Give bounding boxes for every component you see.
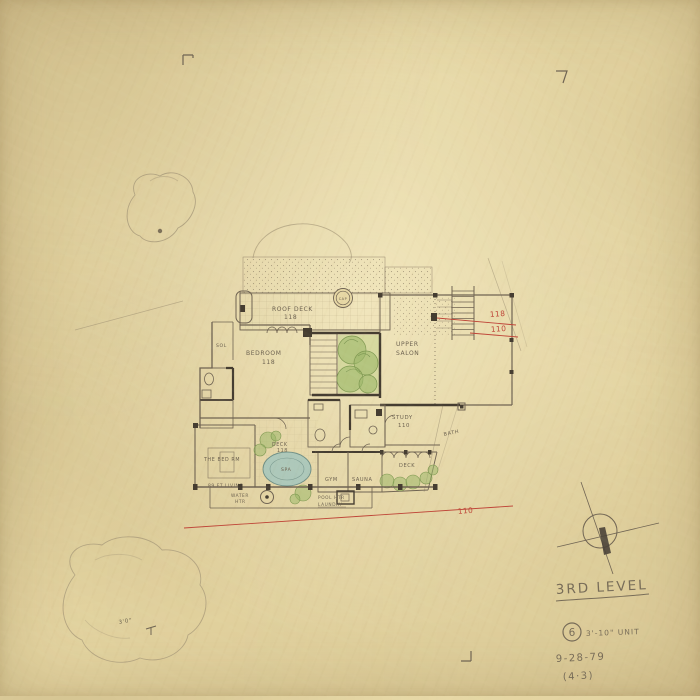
corner-mark-bottom-right: [461, 651, 471, 661]
label-upper-salon-2: SALON: [396, 350, 419, 357]
label-roof-deck: ROOF DECK: [272, 306, 313, 313]
label-upper-salon-1: UPPER: [396, 341, 419, 348]
bed-rm: [193, 423, 255, 487]
label-cap: CAP: [339, 297, 348, 301]
pencil-blob-upper-left: [127, 173, 195, 242]
corner-mark-top-left: [183, 55, 193, 65]
label-deck-center: DECK: [272, 442, 288, 448]
label-deck-right: DECK: [399, 463, 415, 469]
label-bed-rm: THE BED RM: [203, 457, 240, 463]
corner-mark-bottom-left: [146, 626, 156, 635]
roof-vent-icon: CAP: [334, 289, 353, 308]
label-deck-center-no: 118: [277, 448, 288, 454]
north-arrow-icon: [557, 482, 659, 574]
corner-mark-top-right: [556, 71, 567, 83]
gym-sauna: [312, 444, 382, 492]
label-roof-deck-no: 118: [284, 314, 297, 321]
redline-110-upper: 110: [491, 324, 507, 334]
corner-note: 3'0": [118, 618, 132, 626]
label-water-htr-1: WATER: [231, 493, 249, 499]
stair: [303, 328, 337, 395]
roof-deck: CAP ROOF DECK 118: [236, 289, 390, 334]
label-laundry: LAUNDRY: [318, 502, 343, 508]
label-sauna: SAUNA: [352, 477, 373, 483]
label-water-htr-2: HTR: [235, 499, 246, 505]
unit-note: 3'-10" UNIT: [586, 627, 640, 638]
label-sol: SOL: [216, 343, 227, 349]
label-bedroom-no: 118: [262, 359, 275, 366]
water-heater-icon: [261, 491, 274, 504]
spa-deck: [253, 420, 318, 504]
title-block: 3RD LEVEL 6 3'-10" UNIT 9-28-79 (4·3): [555, 577, 649, 683]
central-baths: [308, 400, 385, 447]
label-gym: GYM: [325, 477, 338, 483]
redline-118: 118: [490, 309, 506, 319]
label-bath: BATH: [443, 429, 460, 438]
redline-110-lower: 110: [457, 506, 473, 516]
floor-plan-sheet: 3'0" CAP ROOF DECK 118: [0, 0, 700, 696]
label-spa: SPA: [281, 467, 292, 473]
pencil-blob-lower-left: [63, 537, 206, 663]
label-bedroom: BEDROOM: [246, 350, 282, 357]
sheet-date: 9-28-79: [556, 651, 606, 665]
unit-circle-number: 6: [569, 627, 576, 639]
label-pool-htr: POOL HTR: [318, 495, 345, 501]
study: [385, 403, 465, 447]
label-study-no: 110: [398, 423, 410, 429]
drawing-sheet: 3'0" CAP ROOF DECK 118: [0, 0, 700, 696]
bottom-wall: [193, 484, 438, 508]
label-study: STUDY: [392, 415, 413, 421]
sheet-number: (4·3): [563, 670, 595, 683]
